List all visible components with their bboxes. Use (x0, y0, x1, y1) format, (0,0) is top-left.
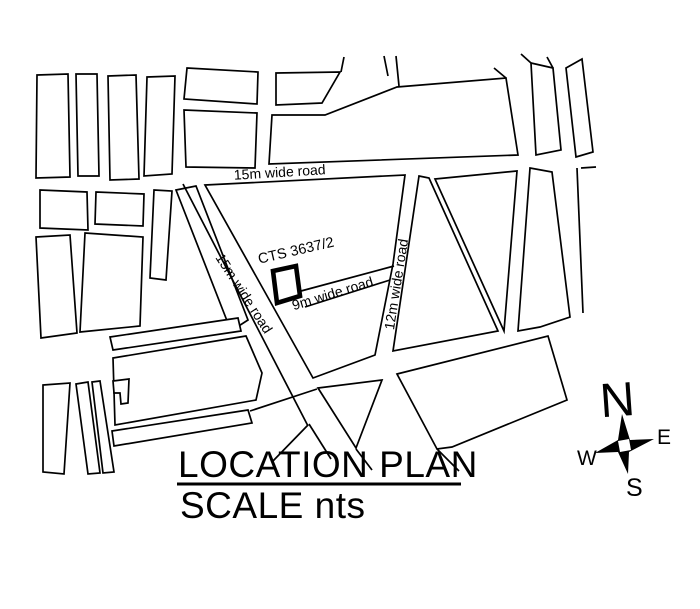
road-edge-line (396, 56, 399, 86)
city-block (397, 336, 567, 449)
city-block (36, 235, 77, 338)
compass-north-label: N (598, 373, 636, 428)
road-edge-line (577, 168, 583, 313)
city-block (76, 74, 99, 176)
city-block (184, 110, 257, 168)
city-block (80, 233, 143, 332)
location-plan-map: 15m wide road15m wide road9m wide road12… (0, 0, 700, 609)
city-block (144, 76, 175, 176)
scale-label: SCALE nts (180, 485, 365, 526)
road-edge-line (581, 167, 596, 168)
city-blocks-layer (36, 59, 593, 474)
compass-east-label: E (657, 426, 671, 449)
city-block (566, 59, 593, 157)
city-block (43, 383, 70, 474)
road-edge-line (341, 57, 344, 72)
city-block (108, 75, 139, 180)
compass-south-label: S (626, 474, 643, 502)
page-title: LOCATION PLAN (178, 444, 478, 485)
subject-plot-outline (273, 266, 300, 303)
city-block (318, 380, 382, 448)
city-block (95, 192, 144, 226)
city-block (150, 190, 172, 280)
city-block (531, 63, 561, 155)
city-block (184, 68, 258, 104)
road-edge-line (250, 389, 317, 411)
compass-rose: N E W S (577, 373, 671, 502)
city-block (36, 74, 70, 178)
compass-west-label: W (577, 447, 597, 470)
city-block (40, 190, 88, 230)
location-plan-sheet: 15m wide road15m wide road9m wide road12… (0, 0, 700, 609)
road-edge-line (384, 56, 388, 76)
road-edge-line (494, 68, 506, 78)
title-block: LOCATION PLAN SCALE nts (177, 444, 478, 526)
city-block (518, 168, 570, 331)
city-block (276, 72, 340, 105)
compass-star-center (618, 439, 631, 452)
road-edge-line (521, 54, 531, 63)
